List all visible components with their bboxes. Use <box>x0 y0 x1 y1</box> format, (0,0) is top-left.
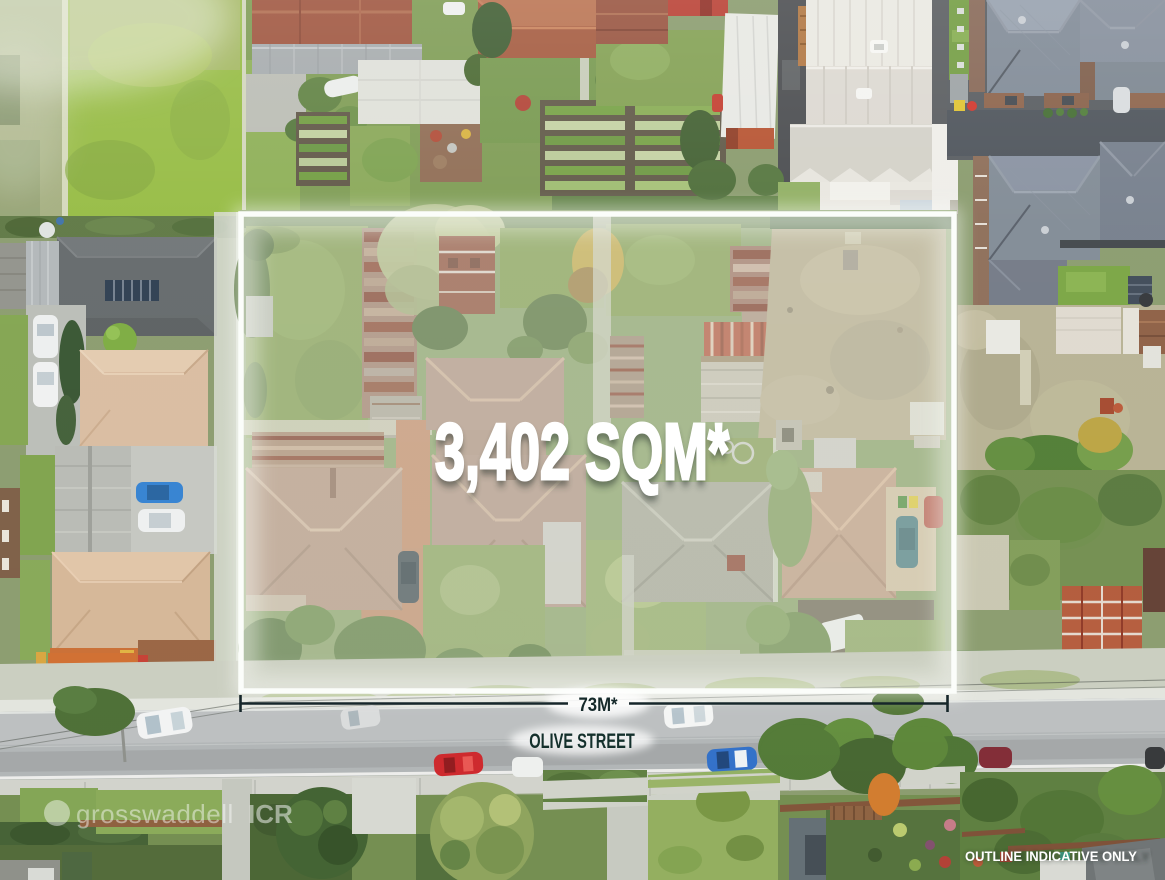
svg-text:OUTLINE INDICATIVE ONLY: OUTLINE INDICATIVE ONLY <box>965 849 1137 865</box>
svg-text:3,402 SQM*: 3,402 SQM* <box>435 407 729 496</box>
svg-text:grosswaddell: grosswaddell <box>76 799 234 829</box>
svg-text:ICR: ICR <box>248 799 293 829</box>
svg-text:73M*: 73M* <box>578 694 618 715</box>
svg-text:OLIVE STREET: OLIVE STREET <box>529 728 635 753</box>
